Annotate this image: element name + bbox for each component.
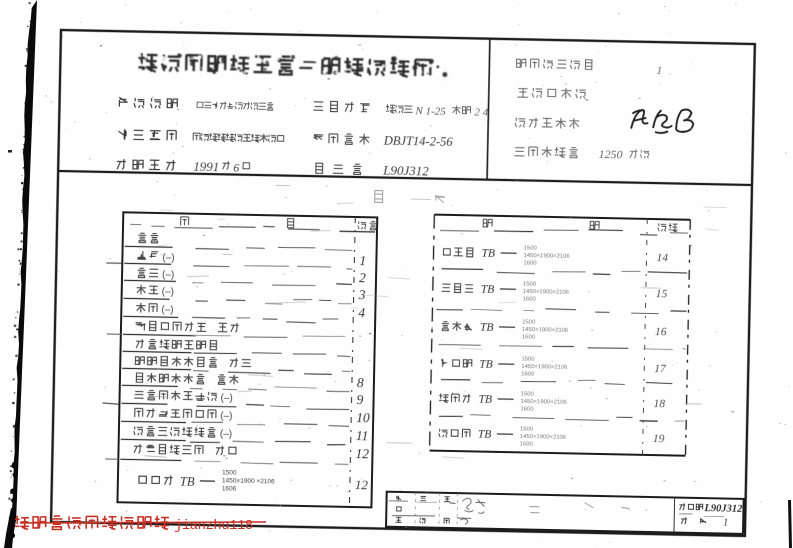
svg-text:3: 3 (358, 287, 366, 302)
svg-text:18: 18 (653, 398, 665, 410)
svg-text:(–): (–) (162, 287, 174, 298)
svg-text:N 1-25: N 1-25 (414, 105, 446, 118)
svg-text:(–): (–) (220, 429, 232, 440)
svg-text:1500: 1500 (222, 469, 237, 476)
svg-text:DBJT14-2-56: DBJT14-2-56 (383, 134, 454, 149)
svg-text:TB: TB (480, 322, 494, 334)
svg-text:TB: TB (479, 359, 493, 371)
svg-text:1500: 1500 (522, 319, 536, 325)
svg-text:4: 4 (358, 305, 365, 320)
svg-text:1: 1 (723, 518, 728, 529)
svg-text:1500: 1500 (520, 426, 534, 432)
svg-text:(–): (–) (220, 393, 232, 404)
svg-text:1500: 1500 (521, 391, 535, 397)
svg-text:14: 14 (656, 252, 668, 264)
svg-text:1450×1900×2106: 1450×1900×2106 (523, 289, 570, 296)
svg-text:TB: TB (478, 429, 492, 441)
svg-text:11: 11 (356, 428, 369, 443)
svg-text:2 4: 2 4 (474, 106, 488, 118)
svg-text:1500: 1500 (521, 356, 535, 362)
svg-text:TB: TB (478, 394, 492, 406)
svg-text:(–): (–) (220, 411, 232, 422)
svg-text:1500: 1500 (523, 281, 537, 287)
svg-text:15: 15 (656, 288, 668, 300)
svg-text:17: 17 (654, 363, 667, 375)
svg-text:1450×1900×2106: 1450×1900×2106 (521, 364, 568, 371)
svg-text:1: 1 (656, 63, 662, 77)
svg-text:1450×1900 ×2106: 1450×1900 ×2106 (222, 477, 275, 485)
svg-text:1600: 1600 (521, 371, 535, 377)
svg-text:6: 6 (233, 161, 239, 175)
svg-text:8: 8 (357, 375, 364, 390)
svg-text:(–): (–) (162, 270, 174, 281)
svg-text:1500: 1500 (524, 245, 538, 251)
svg-text:(–): (–) (162, 253, 174, 264)
svg-text:10: 10 (356, 410, 370, 425)
svg-text:TB: TB (481, 284, 495, 296)
svg-text:1600: 1600 (520, 441, 534, 447)
svg-text:1450×1900×2106: 1450×1900×2106 (523, 253, 570, 260)
svg-text:1450×1900×2106: 1450×1900×2106 (522, 327, 569, 334)
svg-text:1600: 1600 (522, 334, 536, 340)
svg-text:1: 1 (359, 253, 366, 268)
svg-text:16: 16 (655, 326, 667, 338)
svg-text:1991: 1991 (193, 159, 219, 175)
svg-text:12: 12 (355, 446, 369, 461)
svg-text:L90J312: L90J312 (382, 163, 429, 179)
svg-text:L90J312: L90J312 (703, 503, 743, 515)
svg-text:1450×1900×2106: 1450×1900×2106 (521, 399, 568, 406)
svg-text:(–): (–) (161, 305, 173, 316)
svg-text:1600: 1600 (523, 260, 537, 266)
svg-text:TB: TB (481, 248, 495, 260)
svg-text:1600: 1600 (520, 406, 534, 412)
svg-text:1250: 1250 (598, 147, 622, 161)
svg-text:9: 9 (356, 392, 363, 407)
svg-text:19: 19 (653, 433, 665, 445)
svg-text:2: 2 (359, 270, 366, 285)
svg-text:TB: TB (180, 475, 195, 489)
svg-text:1606: 1606 (222, 485, 237, 492)
svg-text:1450×1900×2106: 1450×1900×2106 (520, 434, 567, 441)
svg-text:1600: 1600 (523, 296, 537, 302)
svg-text:jianzhu118: jianzhu118 (174, 518, 253, 534)
